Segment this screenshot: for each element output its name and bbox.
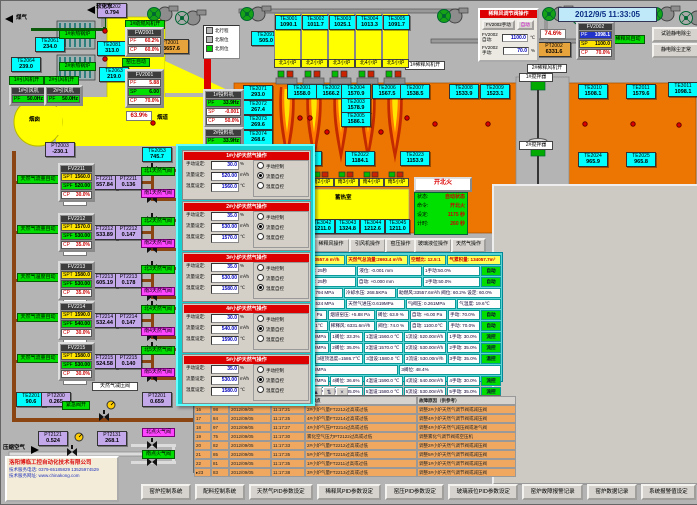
label-软化水: 软化水 [96,4,113,11]
sensor-TE2071: TE2071293.0 [243,85,273,100]
setpoint-input[interactable]: 1570.0 [211,234,239,243]
fv2002-manual-button[interactable]: FV2002手动 [482,20,515,30]
gas-panel-1: 1#小炉天然气操作手动设定:30.0%流量设定:520.00m³/h温度设定:1… [182,150,311,200]
controller-FV2002[interactable]: FV2002PF1098.1SP1100.0CP70.0% [576,21,615,60]
info-header-cell: 天然气总流量:2693.4 m³/h [346,255,408,265]
radio-手动控制[interactable]: 手动控制 [257,264,284,273]
sensor-PT2215: PT22150.140 [115,354,142,369]
alarm-table: 故障点故障原因（供参考）16982012/09/0511:17:212#小炉气量… [193,395,501,473]
sensor-TE3044: TE30441212.6 [360,219,385,234]
sensor-PT2131: PT2131268.1 [97,431,127,446]
info-cell: 2流设: 530.00m³/h [404,343,447,353]
nav-button-玻璃液位PID参数设定[interactable]: 玻璃液位PID参数设定 [448,484,518,500]
fv2002-manual-setpoint[interactable]: 70.0 [503,47,529,55]
sensor-TE2010: TE20101508.1 [578,84,608,99]
sensor-FT2214: FT2214532.44 [91,313,118,328]
gas-panel-3: 3#小炉天然气操作手动设定:35.0%流量设定:530.00m³/h温度设定:1… [182,252,311,302]
sensor-TE2005: TE20051586.1 [341,112,371,127]
setpoint-input[interactable]: 540.00 [211,325,239,334]
label-煤气: 煤气 [16,15,27,22]
nav-button-配料控制系统[interactable]: 配料控制系统 [195,484,245,500]
dilution-valve-panel: 稀释风调节阀操作 FV2002手动 自动 FV2002自动:1100.0℃ FV… [478,8,539,62]
datetime-display: 2012/9/5 11:33:05 [558,7,657,22]
alarm-header: 故障原因（供参考） [417,396,516,405]
alarm-row[interactable]: 22812012/09/0511:17:351#小炉气量FT2211过高或过低调… [194,459,500,468]
mode-radio-group: 手动控制流量自控温度自控 [253,313,309,350]
sensor-TE3011: TE30111098.1 [668,82,697,97]
sensor-TE2025: TE2025965.8 [626,152,656,167]
sensor-TE3043: TE30431324.8 [335,219,360,234]
info-cell: 3阀位: 48.4% [399,365,501,375]
alarm-row[interactable]: 19752012/09/0511:17:30雾化空气压力PT2122过高或过低调… [194,432,500,441]
info-cell: 自动: 1100.0℃ [410,321,447,331]
label-2#引风机开: 2#引风机开 [44,76,79,85]
sensor-PT2003: PT2003-230.1 [45,142,75,157]
radio-流量自控[interactable]: 流量自控 [257,274,284,283]
sensor-TE3005: TE30051091.7 [383,15,410,30]
sensor-TE3045: TE30451211.0 [385,219,410,234]
radio-手动控制[interactable]: 手动控制 [257,366,284,375]
nav-button-窑炉控制系统[interactable]: 窑炉控制系统 [141,484,191,500]
sensor-PT2002: PT20026331.6 [537,42,571,57]
info-cell: 2手动:50.0% [423,277,480,287]
auto-mode-label: 天然气流量自动 [17,175,59,184]
fv2002-auto-button[interactable]: 自动 [517,20,534,30]
mode-badge: 自动 [481,277,501,287]
dilution-title: 稀释风调节阀操作 [480,10,537,18]
info-cell: 3温设:1580.0 ℃ [364,354,403,364]
controller-FV2215[interactable]: FV2215SPT1580.0SPF530.00CP30.0% [58,342,95,381]
alarm-row[interactable]: 16982012/09/0511:17:212#小炉气量FT2212过高或过低调… [194,405,500,414]
label-1#稀释风机开: 1#稀释风机开 [405,61,445,70]
mode-badge: 自动 [481,266,501,276]
setpoint-input[interactable]: 530.00 [211,223,239,232]
sensor-TE2023: TE20231153.9 [400,151,430,166]
port-label-北2小炉: 北2小炉 [301,59,328,68]
controller-FV2214[interactable]: FV2214SPT1590.0SPF540.00CP30.0% [58,301,95,340]
mode-radio-group: 手动控制流量自控温度自控 [253,364,309,401]
furnace-gas-popup: 1#小炉天然气操作手动设定:30.0%流量设定:520.00m³/h温度设定:1… [176,144,315,406]
label-窑压自动: 窑压自动 [122,58,150,67]
setpoint-input[interactable]: 530.00 [211,376,239,385]
mode-radio-group: 手动控制流量自控温度自控 [253,211,309,248]
info-cell: 稀释风: 6331.6m³/h [329,321,375,331]
gas-panel-2: 2#小炉天然气操作手动设定:35.0%流量设定:530.00m³/h温度设定:1… [182,201,311,251]
label-烟囱: 烟囱 [29,117,40,124]
radio-温度自控[interactable]: 温度自控 [257,386,284,395]
limit-legend: 北行程北限位北到位 [203,25,240,59]
alarm-row[interactable]: 17842012/09/0511:17:254#小炉气量FT2214过高或过低调… [194,414,500,423]
op-button-玻璃液位操作[interactable]: 玻璃液位操作 [414,238,452,253]
radio-流量自控[interactable]: 流量自控 [257,376,284,385]
radio-手动控制[interactable]: 手动控制 [257,162,284,171]
sensor-TE2024: TE2024965.9 [578,152,608,167]
sensor-TE2022: TE20221184.1 [345,151,375,166]
mode-radio-group: 手动控制流量自控温度自控 [253,262,309,299]
nav-button-窑压PID参数设定[interactable]: 窑压PID参数设定 [385,484,444,500]
info-cell: 3流设: 530.00m³/h [404,354,447,364]
port-label-北1小炉: 北1小炉 [274,59,301,68]
sensor-TE2003: TE20031578.9 [341,98,371,113]
info-cell: 气温度: 19.6℃ [457,299,501,309]
info-header-cell: 空燃比: 12.5:1 [409,255,446,265]
sensor-FT2215: FT2215524.58 [91,354,118,369]
auto-mode-label: 天然气流量自动 [17,225,59,234]
gas-panel-4: 4#小炉天然气操作手动设定:30.0%流量设定:540.00m³/h温度设定:1… [182,303,311,353]
info-header-cell: 气累积量: 134057.7m³ [447,255,501,265]
nav-button-窑炉数据记录[interactable]: 窑炉数据记录 [587,484,637,500]
port-label-南3小炉: 南3小炉 [334,178,359,187]
process-info-panel: 助燃风量:33557.6 m³/h天然气总流量:2693.4 m³/h空燃比: … [288,252,503,382]
south-gas-valve-label: 南1天然气阀 [141,189,175,198]
radio-流量自控[interactable]: 流量自控 [257,325,284,334]
label-稀释风自动: 稀释风自动 [611,35,645,44]
north-gas-valve-label: 北4天然气阀 [141,305,175,314]
label-2#稀释风机开: 2#稀释风机开 [527,64,567,73]
north-gas-valve-label: 北1天然气阀 [141,167,175,176]
mode-badge: 流控 [481,343,501,353]
south-gas-valve-label: 南3天然气阀 [141,287,175,296]
label-74.6%: 74.6% [540,29,566,39]
controller-FV2213[interactable]: FV2213SPT1580.0SPF530.00CP35.0% [58,261,95,300]
controller-1#引风机[interactable]: 1#引风机PF50.0Hz [9,85,48,106]
setpoint-input[interactable]: 30.0 [211,161,239,170]
sensor-TE2007: TE20071538.5 [400,84,430,99]
setpoint-input[interactable]: 1560.0 [211,183,239,192]
setpoint-input[interactable]: 30.0 [211,314,239,323]
fv2002-manual-label: FV2002手动: [482,45,501,56]
ignite-north-button[interactable]: 开北火 [414,177,472,192]
south-gas-valve-label: 南2天然气阀 [141,239,175,248]
op-button-窑压操作[interactable]: 窑压操作 [385,238,416,253]
setpoint-input[interactable]: 35.0 [211,263,239,272]
label-63.9%: 63.9% [126,111,152,121]
sensor-TE3004: TE30041013.3 [356,15,383,30]
info-cell: 气阀压: 0.261MPa [406,299,457,309]
controller-2#引风机[interactable]: 2#引风机PF50.0Hz [44,85,83,106]
op-button-稀释风操作[interactable]: 稀释风操作 [312,238,350,253]
label-压缩空气: 压缩空气 [3,445,25,452]
mode-badge: 自动 [481,310,501,320]
mode-badge: 自动 [481,321,501,331]
setpoint-input[interactable]: 35.0 [211,365,239,374]
radio-流量自控[interactable]: 流量自控 [257,172,284,181]
sensor-FT2211: FT2211557.84 [91,175,118,190]
scada-furnace-screen: PT22020.794TE2061234.0TE2064239.0TE20813… [0,0,697,505]
info-cell: 3碹顶温度=1586.7℃ [315,354,363,364]
alarm-header: 故障点 [305,396,417,405]
alarm-row[interactable]: 18972012/09/0511:17:274#小炉气压PT2214过高或过低调… [194,423,500,432]
auto-mode-label: 天然气温度自动 [17,273,59,282]
radio-温度自控[interactable]: 温度自控 [257,182,284,191]
info-cell: 液位: -0.001 mm [357,266,422,276]
unit-label: ℃ [530,35,535,41]
sensor-TE2061: TE2061234.0 [35,37,65,52]
alarm-row[interactable]: 21852012/09/0511:17:355#小炉气量FT2215过高或过低调… [194,450,500,459]
auto-mode-label: 天然气流量自动 [17,354,59,363]
sensor-TE3003: TE30031025.1 [329,15,356,30]
info-cell: 2温设:1570.0 ℃ [364,343,403,353]
op-button-天然气操作[interactable]: 天然气操作 [451,238,486,253]
nav-button-系统报警值设定[interactable]: 系统报警值设定 [641,484,696,500]
gas-panel-5: 5#小炉天然气操作手动设定:35.0%流量设定:530.00m³/h温度设定:1… [182,354,311,404]
unit-label: % [531,48,535,53]
sensor-FT2213: FT2213605.19 [91,273,118,288]
sensor-PT2213: PT22130.178 [115,273,142,288]
sensor-TE3001: TE30011090.1 [275,15,302,30]
info-cell: 助燃风:33557.6m³/h 阀位: 60.2% 设定: 60.0% [397,288,501,298]
sensor-TE2001: TE20011558.0 [287,84,317,99]
label-2#余热锅炉: 2#余热锅炉 [59,62,96,71]
op-button-引风机操作[interactable]: 引风机操作 [349,238,386,253]
north-gas-valve-label: 北5天然气阀 [141,346,175,355]
sensor-TE2006: TE20061567.5 [372,84,402,99]
info-cell: 1手动:50.0% [423,266,480,276]
sensor-PT2201: PT22010.659 [142,392,172,407]
radio-温度自控[interactable]: 温度自控 [257,233,284,242]
controller-FV2001[interactable]: FV2001PF5.88SP6.00CP70.0% [125,69,164,108]
info-cell: 2手动: 35.0% [447,343,480,353]
sensor-TE2073: TE2073269.6 [243,115,273,130]
sensor-TE3002: TE30021011.7 [302,15,329,30]
sensor-TE2072: TE2072267.4 [243,100,273,115]
info-cell: 1温设:1560.0 ℃ [364,332,403,342]
south-gas-valve-label: 南4天然气阀 [141,327,175,336]
label-1#引风机开: 1#引风机开 [9,76,44,85]
info-cell: 自动: +6.00 Pa [410,310,447,320]
fire-status-panel: 状态:自动状态命令:开北火设定:1175 秒计时:260 秒 [414,192,468,235]
info-cell: 烟道窑压: +5.88 Pa [328,310,374,320]
company-web[interactable]: 技术服务网址: www.chinakong.com [9,473,115,479]
info-cell: 3手动: 35.0% [448,354,480,364]
info-cell: 手动: 70.0% [448,310,480,320]
setpoint-input[interactable]: 1590.0 [211,336,239,345]
sensor-TE2009: TE20091523.1 [480,84,510,99]
label-1#搅拌器: 1#搅拌器 [519,73,553,82]
label-北点火气阀: 北点火气阀 [142,428,175,437]
port-label-南4小炉: 南4小炉 [359,178,384,187]
company-info: 洛阳博临工控自动化技术有限公司 技术服务电话: 0379-65185829 13… [5,456,119,502]
alarm-row[interactable]: 20822012/09/0511:17:332#小炉气量FT2212过高或过低调… [194,441,500,450]
sensor-PT2212: PT22120.147 [115,225,142,240]
controller-FW2001[interactable]: FW2001PF60.2%CP60.0% [125,27,164,57]
company-name: 洛阳博临工控自动化技术有限公司 [9,459,115,467]
setpoint-input[interactable]: 530.00 [211,274,239,283]
setpoint-input[interactable]: 35.0 [211,212,239,221]
nav-button-稀释风PID参数设定[interactable]: 稀释风PID参数设定 [317,484,381,500]
sensor-PT2214: PT22140.147 [115,313,142,328]
radio-温度自控[interactable]: 温度自控 [257,284,284,293]
info-cell: 冷却水压: 268.5KPa [344,288,396,298]
nav-button-天然气PID参数设定[interactable]: 天然气PID参数设定 [249,484,313,500]
radio-手动控制[interactable]: 手动控制 [257,315,284,324]
alarm-row[interactable]: ▸23832012/09/0511:17:383#小炉气量FT2213过高或过低… [194,468,500,477]
port-label-北4小炉: 北4小炉 [355,59,382,68]
sensor-TE2011: TE20111579.6 [626,84,656,99]
info-cell: 1阀位: 33.3% [330,332,363,342]
label-南点火气阀: 南点火气阀 [142,450,175,459]
label-1#余热锅炉: 1#余热锅炉 [59,30,96,39]
bottom-nav: 窑炉控制系统配料控制系统天然气PID参数设定稀释风PID参数设定窑压PID参数设… [141,484,696,500]
label-2#搅拌器: 2#搅拌器 [519,141,553,150]
label-蓄热室: 蓄热室 [335,195,352,202]
setpoint-input[interactable]: 1580.0 [211,387,239,396]
info-cell: 阀位: 63.9 % [376,310,409,320]
label-紧急阀开: 紧急阀开 [62,401,90,410]
sensor-FT2212: FT2212533.89 [91,225,118,240]
sensor-TE2081: TE2081313.0 [97,41,127,56]
controller-1#投料机[interactable]: 1#投料机PF33.9HzSP-0.001CP50.0% [203,89,244,128]
info-cell: 天然气进压:0.619MPa [346,299,405,309]
setpoint-input[interactable]: 520.00 [211,172,239,181]
radio-温度自控[interactable]: 温度自控 [257,335,284,344]
info-cell: 1流设: 520.00m³/h [404,332,447,342]
info-cell: 手动: 70.0% [448,321,480,331]
controller-FV2211[interactable]: FV2211SPT1560.0SPF520.00CP30.0% [58,163,95,202]
trend-area [492,184,697,485]
sensor-PT2121: PT21210.524 [38,431,68,446]
fv2002-auto-label: FV2002自动: [482,32,500,43]
port-label-北5小炉: 北5小炉 [382,59,409,68]
nav-button-窑炉故障报警记录[interactable]: 窑炉故障报警记录 [522,484,583,500]
north-gas-valve-label: 北3天然气阀 [141,265,175,274]
mode-badge: 温控 [481,354,501,364]
info-cell: 自动: +0.000 mm [357,277,422,287]
port-label-南5小炉: 南5小炉 [384,178,409,187]
south-gas-valve-label: 南5天然气阀 [141,368,175,377]
sensor-TE2064: TE2064239.0 [11,57,41,72]
sensor-PT2211: PT22110.136 [115,175,142,190]
info-cell: 1手动: 30.0% [447,332,480,342]
sensor-TE2053: TE2053745.7 [142,147,172,162]
sensor-TE2074: TE2074268.6 [243,130,273,145]
info-cell: 阀位: 74.0 % [376,321,409,331]
north-gas-valve-label: 北2天然气阀 [141,217,175,226]
radio-流量自控[interactable]: 流量自控 [257,223,284,232]
port-label-北3小炉: 北3小炉 [328,59,355,68]
mode-radio-group: 手动控制流量自控温度自控 [253,160,309,197]
radio-手动控制[interactable]: 手动控制 [257,213,284,222]
info-cell: 2阀位: 35.0% [330,343,363,353]
label-烟道: 烟道 [157,115,168,122]
sensor-TE2008: TE20081533.9 [449,84,479,99]
auto-mode-label: 天然气流量自动 [17,313,59,322]
setpoint-input[interactable]: 1580.0 [211,285,239,294]
mode-badge: 流控 [481,332,501,342]
label-天然气减压阀: 天然气减压阀 [92,382,138,391]
sensor-TE2004: TE20041570.9 [341,84,371,99]
controller-FV2212[interactable]: FV2212SPT1570.0SPF530.00CP35.0% [58,213,95,252]
fv2002-auto-setpoint[interactable]: 1100.0 [502,34,528,42]
